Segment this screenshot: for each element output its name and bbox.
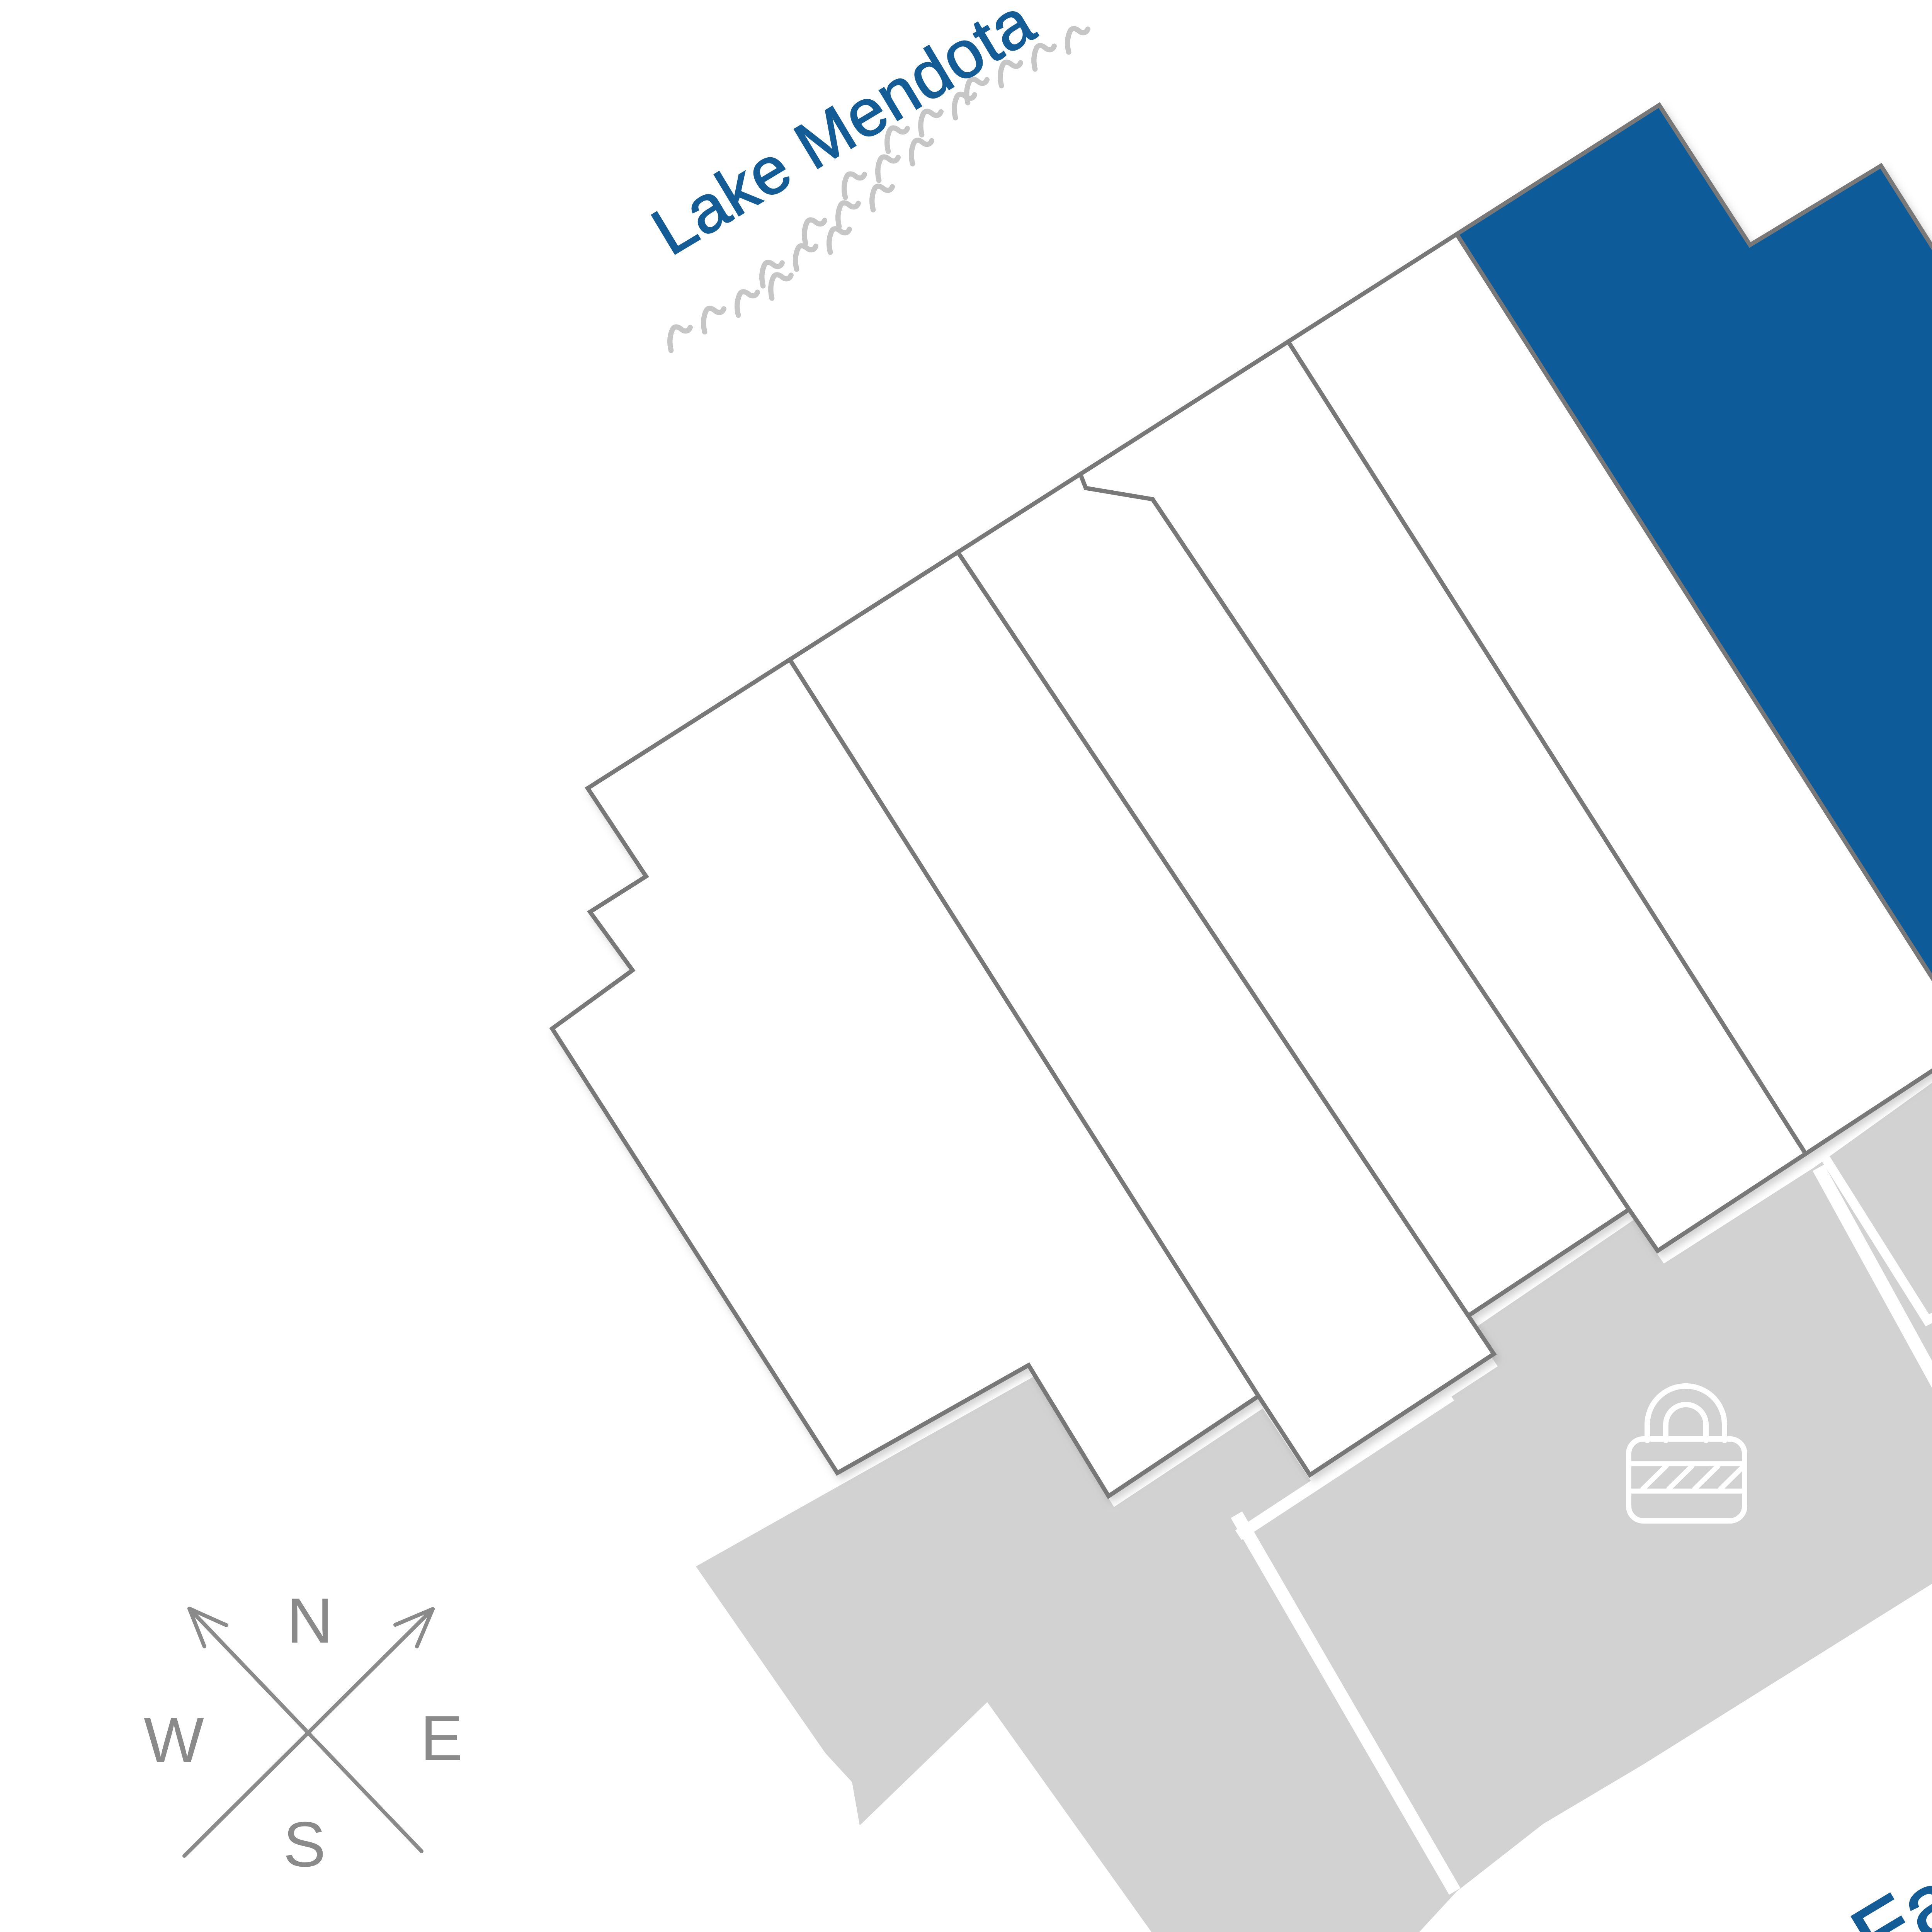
svg-text:W: W bbox=[144, 1704, 204, 1776]
svg-text:N: N bbox=[287, 1585, 333, 1656]
svg-text:E: E bbox=[420, 1702, 463, 1774]
svg-text:Lake Mendota: Lake Mendota bbox=[639, 0, 1047, 269]
svg-text:S: S bbox=[283, 1809, 326, 1880]
svg-text:Capitol: Capitol bbox=[5, 1922, 212, 1932]
